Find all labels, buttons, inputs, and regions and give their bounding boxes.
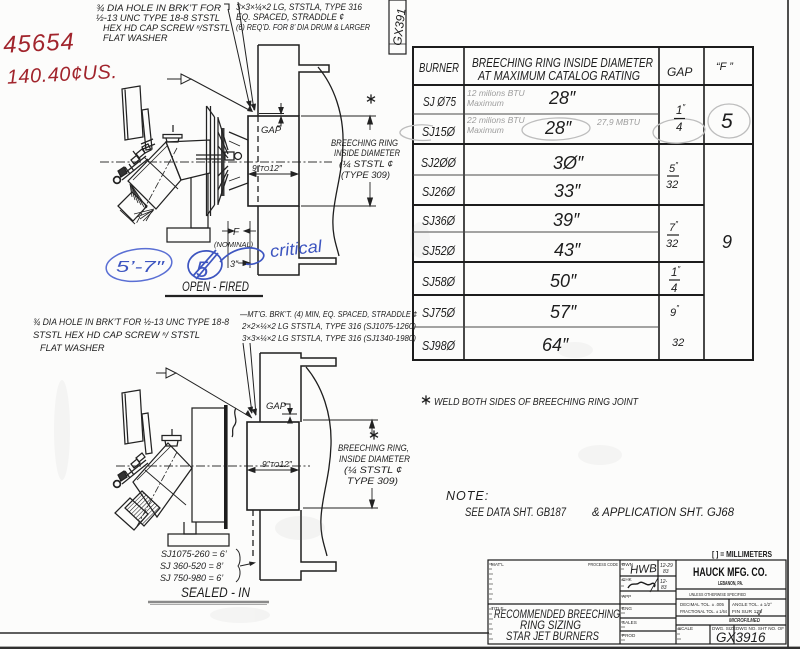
svg-text:43″: 43″ [554,240,581,260]
svg-text:SJ26Ø: SJ26Ø [422,185,456,199]
svg-text:APP: APP [622,594,631,599]
svg-text:EQ. SPACED, STRADDLE ¢: EQ. SPACED, STRADDLE ¢ [236,12,344,22]
svg-text:27,9 MBTU: 27,9 MBTU [596,117,641,127]
svg-text:22 milions BTU: 22 milions BTU [466,115,525,125]
svg-text:MICROFILMED: MICROFILMED [729,618,760,624]
svg-text:39″: 39″ [553,210,580,230]
svg-text:3″: 3″ [230,259,239,269]
svg-text:PROD: PROD [622,633,636,638]
svg-text:INSIDE DIAMETER: INSIDE DIAMETER [339,454,410,464]
svg-text:GX3916: GX3916 [716,630,766,645]
svg-text:MAT'L: MAT'L [491,562,504,567]
svg-text:SJ 750-980 = 6’: SJ 750-980 = 6’ [160,573,224,583]
svg-text:“F ”: “F ” [716,61,734,73]
svg-text:FLAT WASHER: FLAT WASHER [103,33,168,43]
svg-text:32: 32 [672,337,684,349]
svg-text:LEBANON, PA.: LEBANON, PA. [718,581,743,587]
svg-text:F: F [233,227,240,238]
svg-text:50″: 50″ [550,271,577,291]
svg-text:UNLESS OTHERWISE SPECIFIED: UNLESS OTHERWISE SPECIFIED [689,592,746,597]
svg-text:GAP: GAP [266,401,287,412]
svg-text:SCALE: SCALE [678,626,693,631]
svg-text:DECIMAL TOL. ± .005: DECIMAL TOL. ± .005 [680,602,725,607]
svg-text:SEALED - IN: SEALED - IN [181,585,250,600]
svg-text:(TYPE 309): (TYPE 309) [341,170,390,180]
svg-text:(¼ STSTL ¢: (¼ STSTL ¢ [339,159,393,169]
svg-text:BURNER: BURNER [419,61,459,75]
svg-text:½-13 UNC TYPE 18-8 STSTL: ½-13 UNC TYPE 18-8 STSTL [96,13,220,23]
svg-text:(6) REQ’D. FOR 8’ DIA DRUM & L: (6) REQ’D. FOR 8’ DIA DRUM & LARGER [236,23,370,32]
svg-text:12 milions BTU: 12 milions BTU [467,88,525,98]
svg-text:WELD BOTH SIDES OF BREECHING R: WELD BOTH SIDES OF BREECHING RING JOINT [434,397,639,408]
svg-text:SJ98Ø: SJ98Ø [422,339,456,353]
svg-text:SJ15Ø: SJ15Ø [422,125,456,139]
svg-text:INSIDE DIAMETER: INSIDE DIAMETER [334,148,400,158]
svg-text:BREECHING RING: BREECHING RING [331,138,398,148]
svg-text:¾ DIA HOLE IN BRK’T FOR: ¾ DIA HOLE IN BRK’T FOR [96,3,221,13]
svg-text:SJ1075-260 = 6’: SJ1075-260 = 6’ [161,549,228,559]
svg-text:GAP: GAP [261,125,282,136]
svg-text:3×3×¼×2 LG STSTLA, TYPE 316 (S: 3×3×¼×2 LG STSTLA, TYPE 316 (SJ1340-1980… [242,333,416,343]
svg-text:GAP: GAP [667,65,692,79]
svg-text:SALES: SALES [622,620,637,625]
svg-text:Maximum: Maximum [467,98,504,108]
svg-text:45654: 45654 [2,28,75,59]
svg-text:2×2×¼×2 LG STSTLA, TYPE 316 (S: 2×2×¼×2 LG STSTLA, TYPE 316 (SJ1075-1260… [241,321,416,331]
svg-text:AT MAXIMUM CATALOG RATING: AT MAXIMUM CATALOG RATING [477,69,640,83]
svg-text:CHK: CHK [622,577,633,582]
svg-text:9: 9 [722,232,732,252]
svg-text:TYPE 309): TYPE 309) [347,476,398,486]
svg-text:STSTL HEX HD CAP SCREW ⁿ/ STST: STSTL HEX HD CAP SCREW ⁿ/ STSTL [33,330,200,340]
svg-text:SEE DATA SHT. GB187: SEE DATA SHT. GB187 [465,507,566,519]
svg-text:SJ 360-520 = 8’: SJ 360-520 = 8’ [160,561,224,571]
svg-text:ANGLE TOL. ± 1/2°: ANGLE TOL. ± 1/2° [732,602,772,607]
svg-text:—MT’G. BRK’T. (4) MIN, EQ. SPA: —MT’G. BRK’T. (4) MIN, EQ. SPACED, STRAD… [239,309,417,319]
svg-text:32: 32 [666,179,678,191]
svg-text:SJ58Ø: SJ58Ø [422,275,456,289]
svg-text:28″: 28″ [544,118,572,138]
svg-text:FLAT WASHER: FLAT WASHER [40,343,105,353]
svg-text:¾ DIA HOLE IN BRK’T FOR ½-13 U: ¾ DIA HOLE IN BRK’T FOR ½-13 UNC TYPE 18… [33,317,230,327]
svg-text:SJ75Ø: SJ75Ø [422,306,456,320]
svg-text:OPEN - FIRED: OPEN - FIRED [182,279,249,294]
svg-text:83: 83 [661,585,667,591]
svg-text:NOTE:: NOTE: [446,489,489,503]
svg-text:5: 5 [721,110,733,133]
svg-text:(¼ STSTL ¢: (¼ STSTL ¢ [344,465,402,475]
svg-text:3Ø″: 3Ø″ [553,153,584,173]
svg-text:BREECHING RING,: BREECHING RING, [338,443,409,453]
svg-text:SJ2ØØ: SJ2ØØ [421,156,457,170]
svg-text:FRACTIONAL TOL. ± 1/64: FRACTIONAL TOL. ± 1/64 [680,609,728,614]
svg-text:83: 83 [663,569,669,575]
svg-text:HWB: HWB [630,563,658,577]
svg-text:4: 4 [676,122,682,134]
svg-text:[ ] = MILLIMETERS: [ ] = MILLIMETERS [712,549,772,559]
svg-text:28″: 28″ [548,88,576,108]
svg-text:BREECHING RING INSIDE DIAMETER: BREECHING RING INSIDE DIAMETER [472,56,653,70]
svg-text:ENG: ENG [622,606,632,611]
svg-text:5’-7″: 5’-7″ [116,259,166,276]
svg-text:SJ36Ø: SJ36Ø [422,214,456,228]
svg-text:STAR JET BURNERS: STAR JET BURNERS [506,631,599,643]
svg-text:3×3×¼×2 LG, STSTLA, TYPE 316: 3×3×¼×2 LG, STSTLA, TYPE 316 [236,2,362,12]
svg-text:PROCESS CODE: PROCESS CODE [588,562,618,567]
svg-text:57″: 57″ [550,302,577,322]
svg-text:32: 32 [666,238,678,250]
svg-text:HAUCK MFG. CO.: HAUCK MFG. CO. [693,565,767,579]
svg-text:& APPLICATION SHT. GJ68: & APPLICATION SHT. GJ68 [592,507,735,519]
svg-text:HEX HD CAP SCREW ⁿ/STSTL: HEX HD CAP SCREW ⁿ/STSTL [103,23,230,33]
svg-text:33″: 33″ [554,181,581,201]
svg-text:SJ Ø75: SJ Ø75 [423,95,456,109]
svg-text:4: 4 [671,283,677,295]
svg-text:Maximum: Maximum [467,125,504,135]
